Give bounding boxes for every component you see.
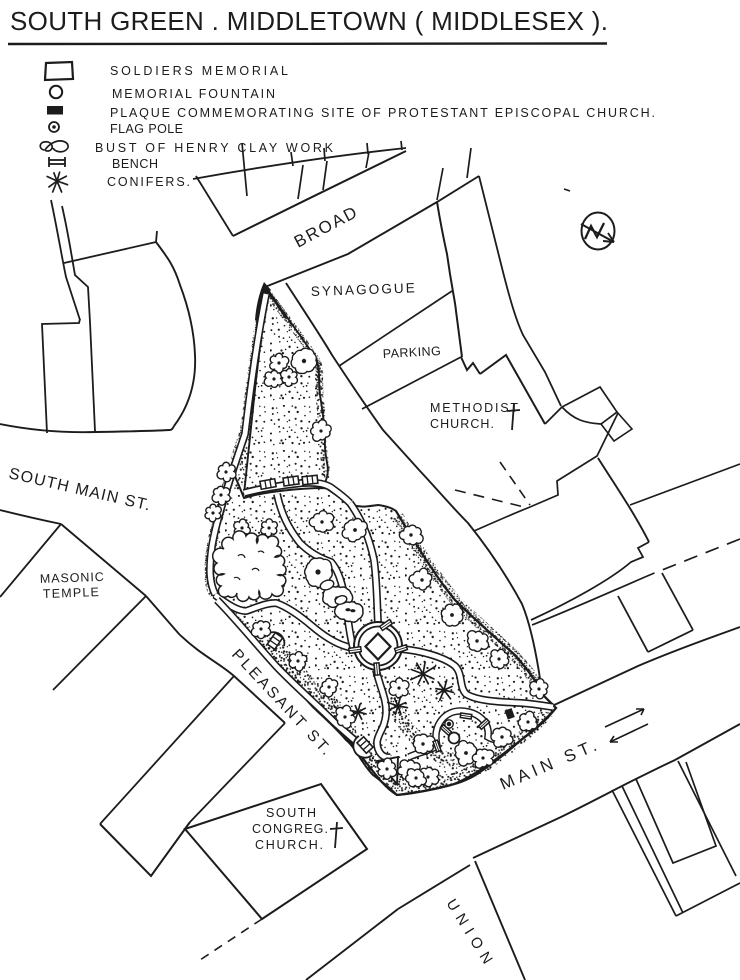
svg-text:FLAG POLE: FLAG POLE [110, 122, 185, 136]
svg-text:SOLDIERS MEMORIAL: SOLDIERS MEMORIAL [110, 64, 290, 78]
svg-text:PLAQUE COMMEMORATING SITE OF P: PLAQUE COMMEMORATING SITE OF PROTESTANT … [110, 106, 657, 120]
svg-text:CONIFERS.: CONIFERS. [107, 175, 192, 189]
svg-text:BUST OF HENRY CLAY WORK: BUST OF HENRY CLAY WORK [95, 141, 335, 155]
svg-text:MEMORIAL FOUNTAIN: MEMORIAL FOUNTAIN [112, 87, 277, 101]
svg-text:CONGREG.: CONGREG. [252, 822, 330, 836]
svg-text:CHURCH.: CHURCH. [430, 417, 496, 431]
svg-text:MASONIC: MASONIC [40, 570, 106, 586]
svg-text:SOUTH GREEN . MIDDLETOWN ( MI: SOUTH GREEN . MIDDLETOWN ( MIDDLESEX ). [10, 6, 610, 36]
svg-text:SOUTH: SOUTH [266, 806, 318, 820]
svg-text:BENCH: BENCH [112, 157, 160, 171]
svg-text:CHURCH.: CHURCH. [255, 838, 325, 852]
svg-text:METHODIST: METHODIST [430, 401, 520, 415]
svg-text:TEMPLE: TEMPLE [43, 585, 101, 601]
